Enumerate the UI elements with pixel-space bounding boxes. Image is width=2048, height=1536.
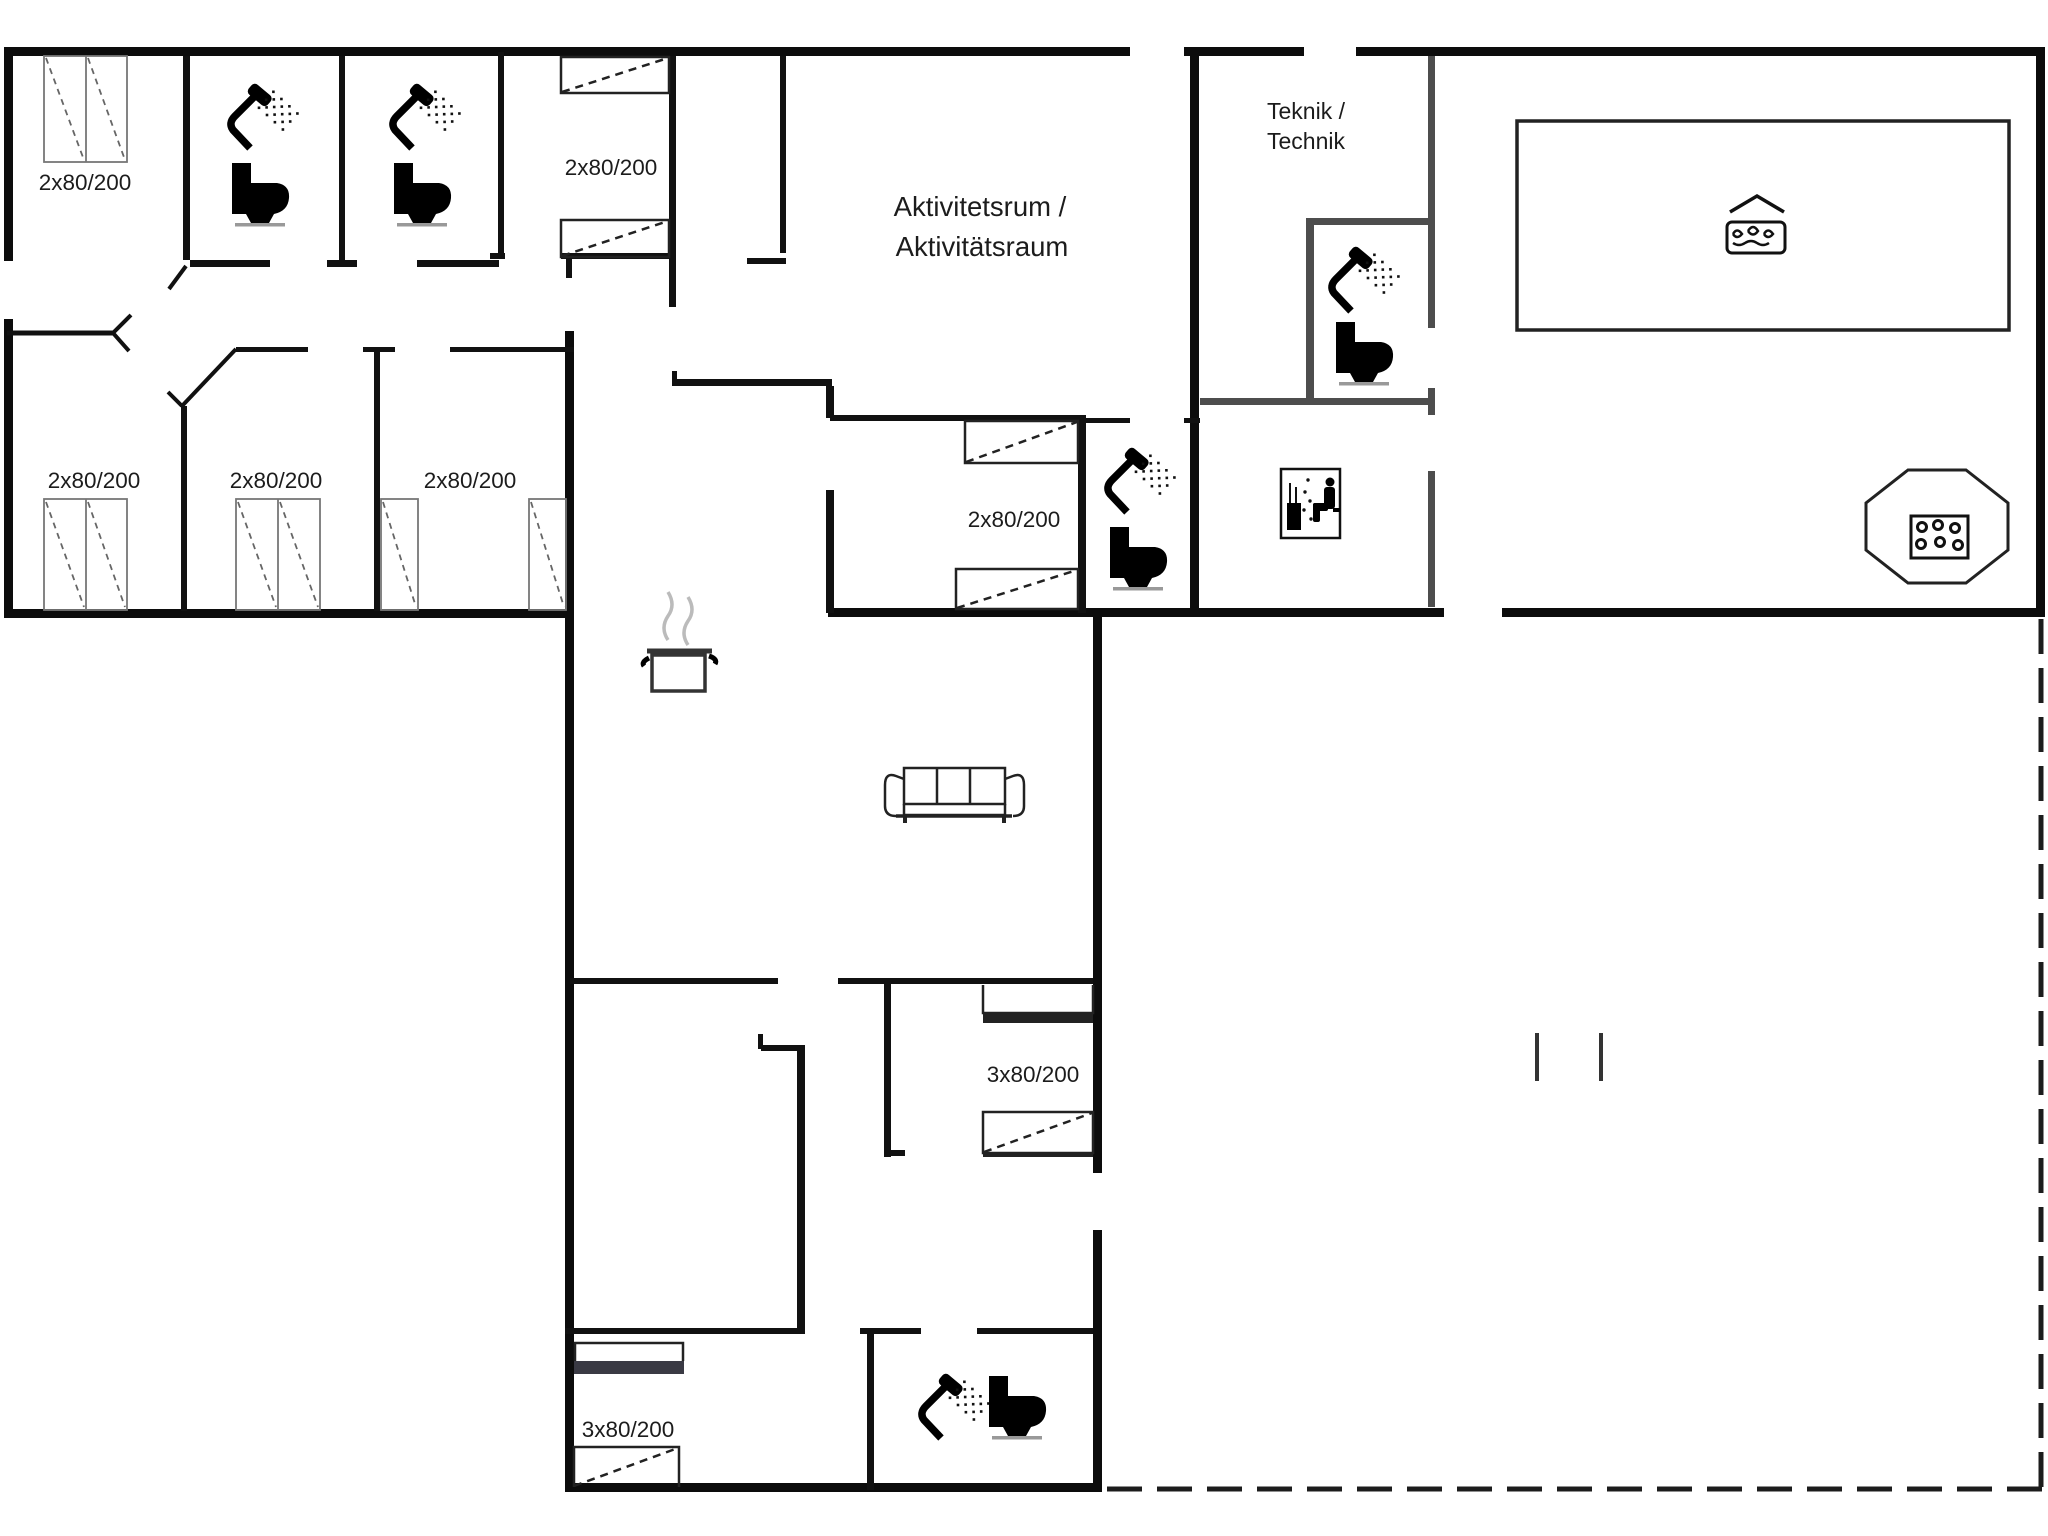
svg-text:3x80/200: 3x80/200 <box>582 1417 675 1442</box>
svg-text:Aktivitetsrum /: Aktivitetsrum / <box>894 191 1067 222</box>
svg-text:2x80/200: 2x80/200 <box>39 170 132 195</box>
svg-text:2x80/200: 2x80/200 <box>424 468 517 493</box>
svg-text:3x80/200: 3x80/200 <box>987 1062 1080 1087</box>
svg-text:2x80/200: 2x80/200 <box>565 155 658 180</box>
svg-text:Teknik /: Teknik / <box>1267 98 1346 124</box>
svg-text:2x80/200: 2x80/200 <box>230 468 323 493</box>
svg-text:Aktivitätsraum: Aktivitätsraum <box>896 231 1069 262</box>
svg-text:2x80/200: 2x80/200 <box>48 468 141 493</box>
svg-text:Technik: Technik <box>1267 128 1345 154</box>
svg-text:2x80/200: 2x80/200 <box>968 507 1061 532</box>
